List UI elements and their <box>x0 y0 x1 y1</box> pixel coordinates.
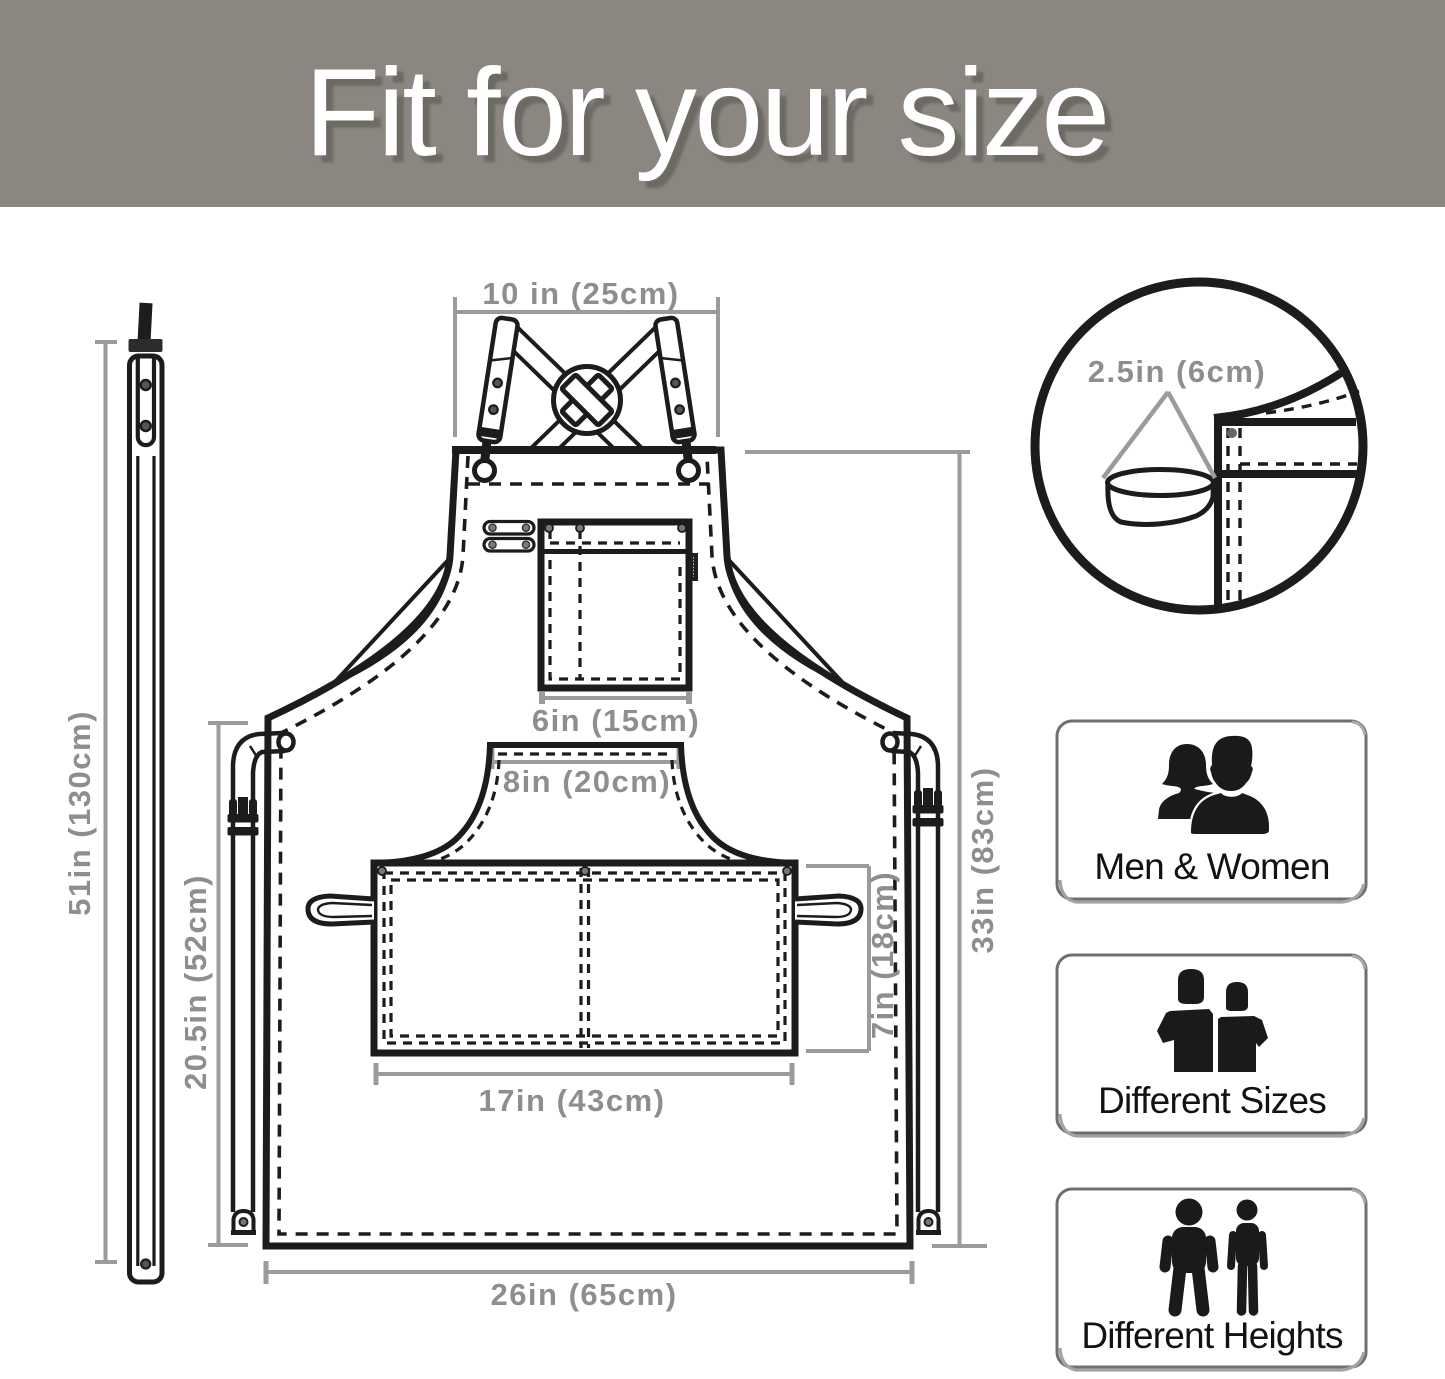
svg-text:51in (130cm): 51in (130cm) <box>62 710 97 916</box>
svg-text:2.5in (6cm): 2.5in (6cm) <box>1088 354 1266 389</box>
svg-text:33in (83cm): 33in (83cm) <box>965 766 1000 953</box>
svg-text:26in (65cm): 26in (65cm) <box>490 1277 677 1312</box>
svg-text:Different Sizes: Different Sizes <box>1098 1080 1326 1121</box>
svg-text:17in (43cm): 17in (43cm) <box>478 1083 665 1118</box>
svg-text:20.5in (52cm): 20.5in (52cm) <box>178 874 213 1090</box>
svg-text:Men & Women: Men & Women <box>1094 846 1329 887</box>
svg-text:6in (15cm): 6in (15cm) <box>532 703 700 738</box>
svg-text:8in (20cm): 8in (20cm) <box>503 764 671 799</box>
svg-text:7in (18cm): 7in (18cm) <box>865 871 900 1039</box>
svg-text:Different Heights: Different Heights <box>1081 1315 1343 1356</box>
svg-text:Fit for your size: Fit for your size <box>304 44 1107 182</box>
svg-text:10 in (25cm): 10 in (25cm) <box>482 276 679 311</box>
